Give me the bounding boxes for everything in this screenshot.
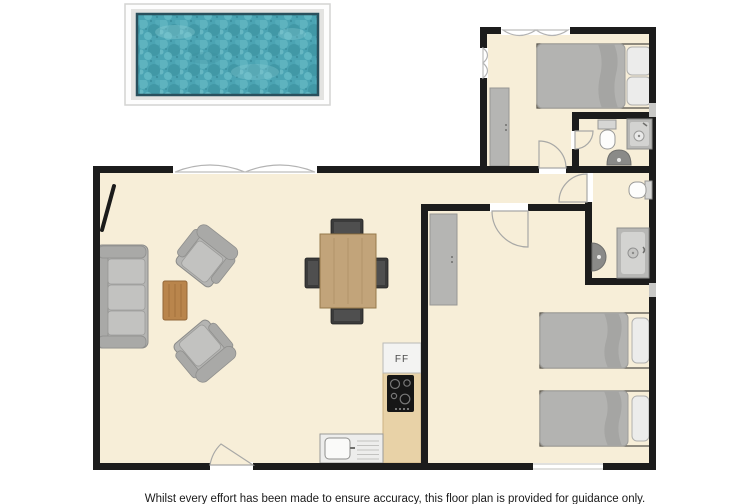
single-bed xyxy=(540,391,653,446)
fridge-freezer-label: FF xyxy=(395,354,409,365)
wardrobe xyxy=(430,214,457,305)
vanity-basin xyxy=(627,119,652,149)
window xyxy=(173,164,317,174)
sofa xyxy=(96,245,148,348)
hob xyxy=(387,375,414,412)
window xyxy=(501,26,570,36)
coffee-table xyxy=(163,281,187,320)
toilet xyxy=(629,181,652,199)
wall-joint xyxy=(649,283,656,297)
swimming-pool xyxy=(125,4,330,105)
floor-plan-canvas: FF xyxy=(0,0,755,504)
single-bed xyxy=(540,313,653,368)
window xyxy=(533,463,603,470)
disclaimer-text: Whilst every effort has been made to ens… xyxy=(145,493,646,504)
wardrobe xyxy=(490,88,509,166)
kitchen-sink xyxy=(320,434,383,463)
floor-plan-page: FF xyxy=(0,0,755,504)
toilet xyxy=(598,120,616,149)
dining-table xyxy=(320,234,376,308)
shower xyxy=(617,228,649,278)
window xyxy=(479,48,488,78)
dining-chair xyxy=(305,258,321,288)
dining-chair xyxy=(331,219,363,236)
wall-joint xyxy=(649,103,656,117)
fridge-freezer: FF xyxy=(383,343,421,373)
dining-chair xyxy=(331,307,363,324)
